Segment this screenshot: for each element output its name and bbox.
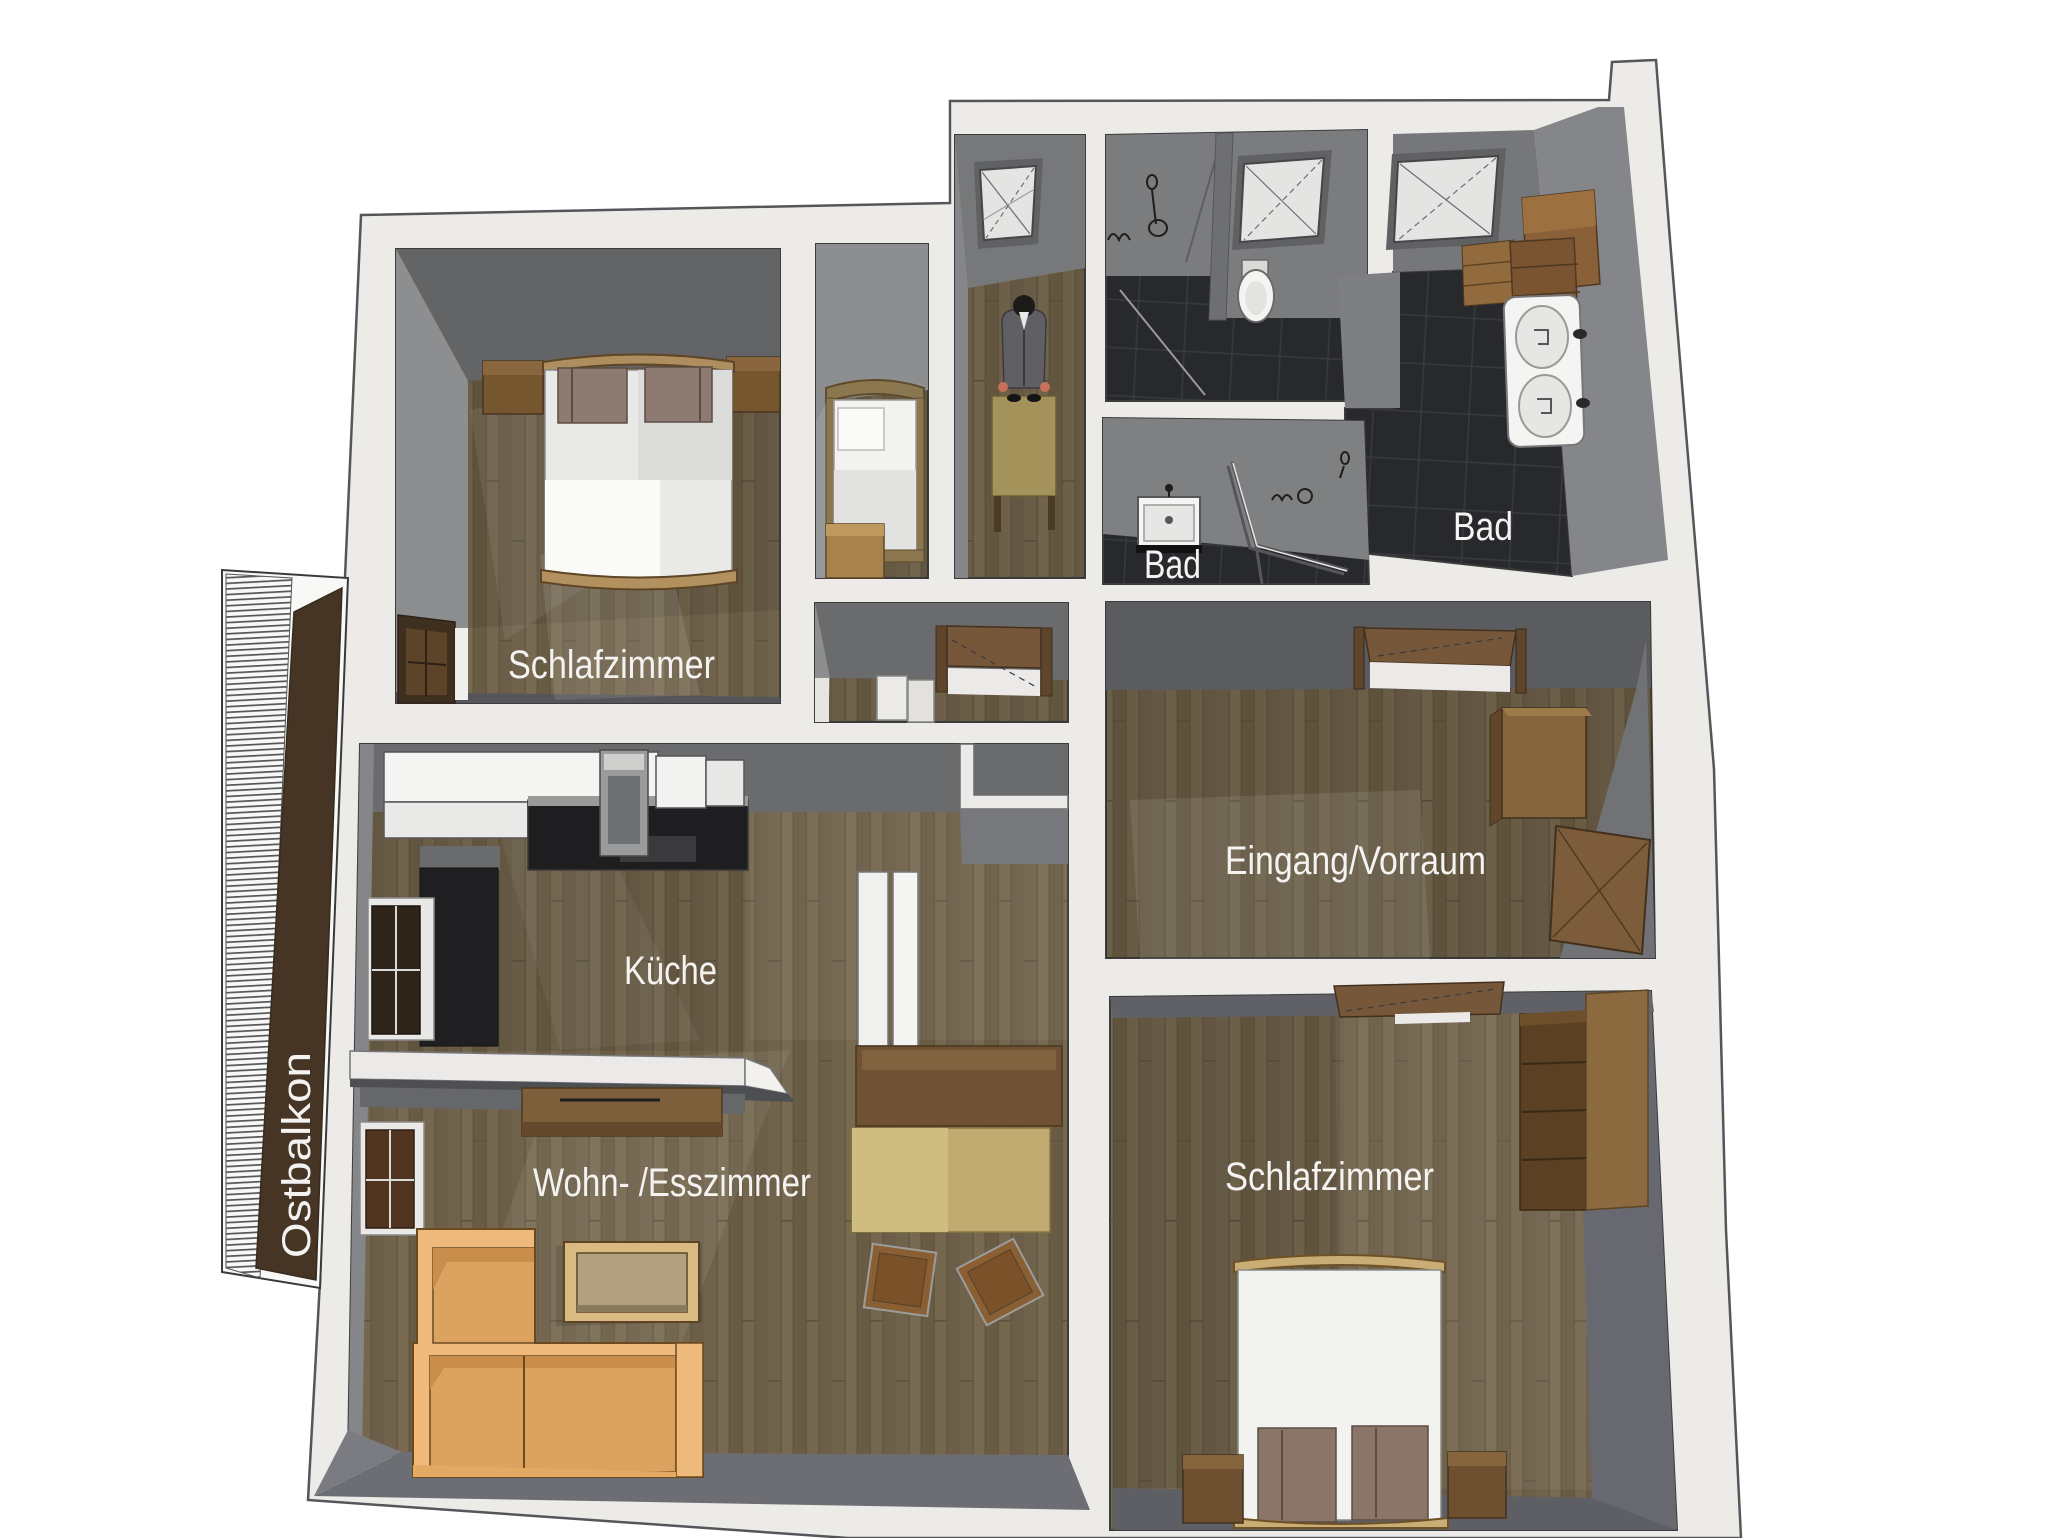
svg-text:Wohn- /Esszimmer: Wohn- /Esszimmer [533, 1161, 811, 1205]
svg-text:Eingang/Vorraum: Eingang/Vorraum [1225, 839, 1486, 883]
svg-text:Schlafzimmer: Schlafzimmer [508, 643, 715, 687]
svg-text:Bad: Bad [1453, 505, 1513, 549]
svg-text:Ostbalkon: Ostbalkon [275, 1052, 319, 1258]
svg-text:Schlafzimmer: Schlafzimmer [1225, 1155, 1434, 1199]
svg-text:Küche: Küche [624, 949, 717, 993]
svg-text:Bad: Bad [1144, 543, 1201, 587]
